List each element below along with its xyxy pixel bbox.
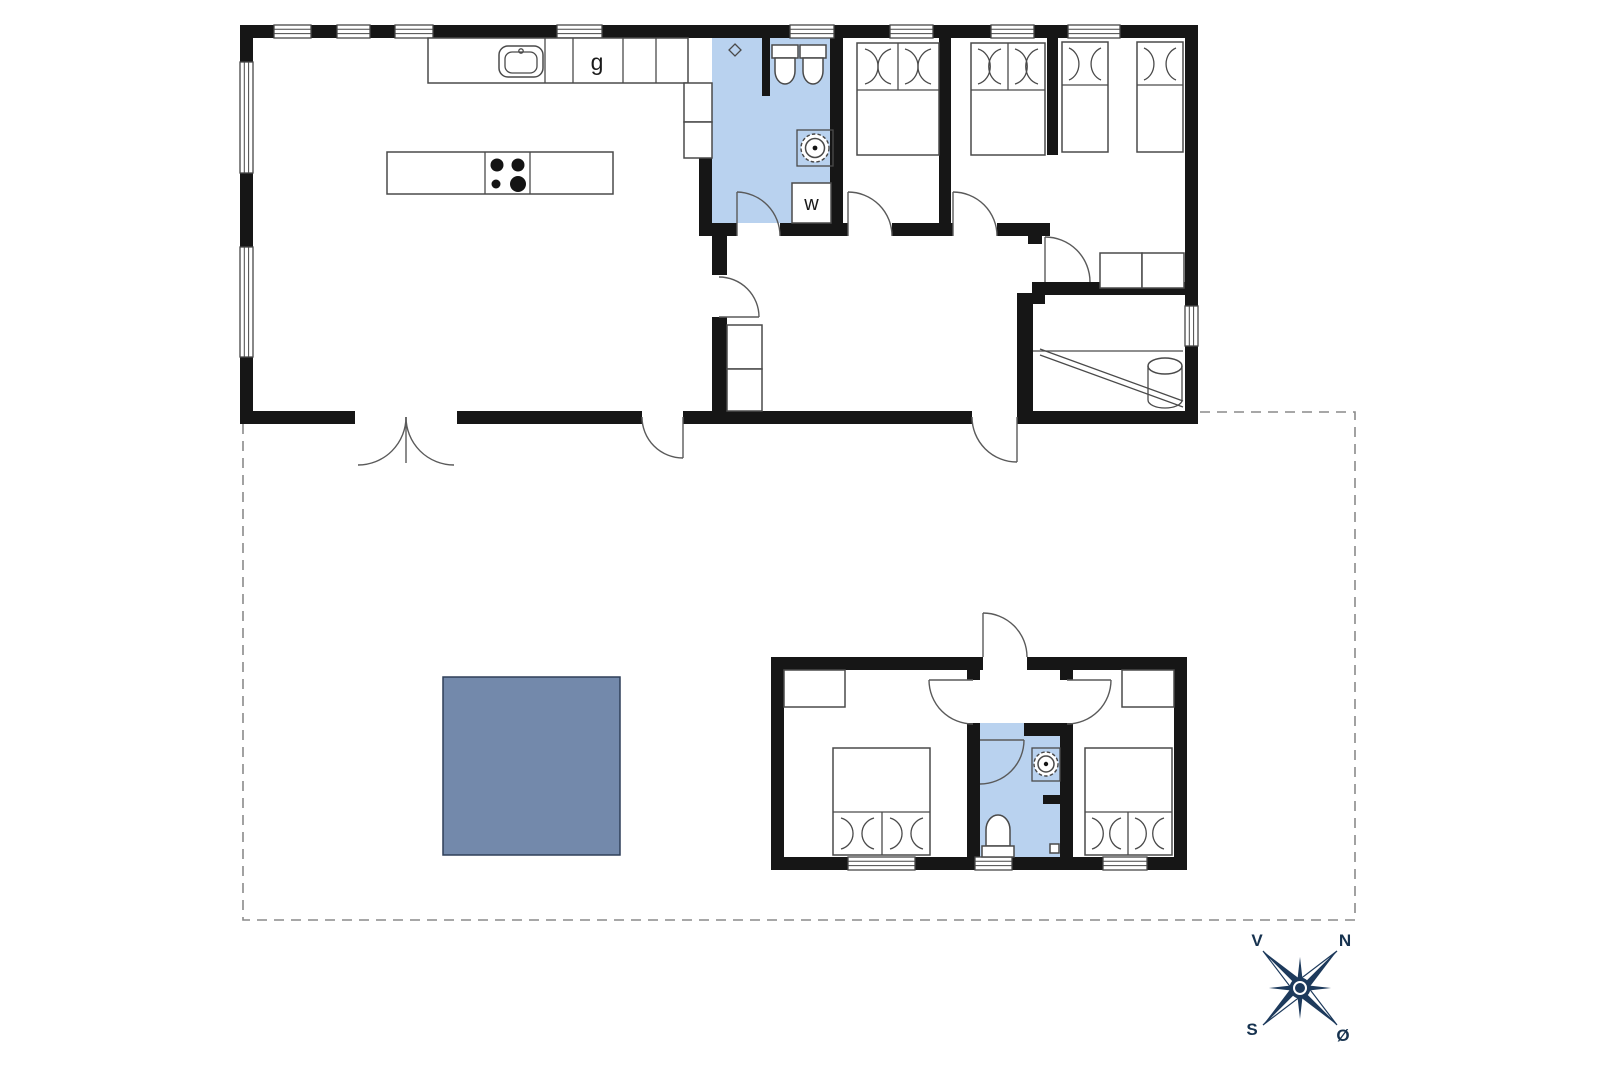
double-bed <box>1085 748 1172 855</box>
bedroom2-door <box>953 192 997 236</box>
annex-left-bedroom <box>784 670 930 855</box>
closet <box>1122 670 1174 707</box>
dresser <box>1142 253 1184 288</box>
window <box>848 857 915 870</box>
window <box>975 857 1012 870</box>
sink-icon <box>499 46 543 77</box>
washing-machine-icon: w <box>792 183 831 223</box>
double-bed <box>833 748 930 855</box>
compass-north-label: N <box>1339 931 1351 950</box>
double-bed <box>857 43 939 155</box>
kitchen: g <box>387 38 712 194</box>
window <box>240 62 253 173</box>
window <box>337 25 370 38</box>
living-to-hall-door <box>719 277 759 317</box>
window <box>890 25 933 38</box>
bedroom3-door <box>1045 237 1090 282</box>
hall <box>727 325 762 411</box>
double-patio-door <box>358 417 454 465</box>
compass-south-label: S <box>1246 1020 1257 1039</box>
sloped-bench <box>1040 349 1183 401</box>
single-bed <box>1137 42 1183 152</box>
stove-label: g <box>591 49 604 75</box>
kitchen-counter <box>428 38 688 83</box>
tall-cabinet <box>684 83 712 122</box>
window <box>991 25 1034 38</box>
window <box>274 25 311 38</box>
window <box>395 25 433 38</box>
closet <box>727 325 762 369</box>
window <box>1103 857 1147 870</box>
bedroom-2 <box>971 43 1045 155</box>
utility-room <box>1033 349 1183 408</box>
annex-right-bedroom-door <box>1067 680 1111 724</box>
floor-plan-drawing: g <box>0 0 1600 1067</box>
annex-right-bedroom <box>1085 670 1174 855</box>
terrace <box>443 677 620 855</box>
toilet-icon <box>800 45 826 84</box>
window <box>240 247 253 357</box>
annex-left-bedroom-door <box>929 680 973 724</box>
floor-plan-page: g <box>0 0 1600 1067</box>
floor-drain-icon <box>1050 844 1059 853</box>
dresser <box>1100 253 1142 288</box>
closet <box>727 369 762 411</box>
kitchen-island <box>387 152 613 194</box>
window <box>557 25 602 38</box>
single-bed <box>1062 42 1108 152</box>
bedroom-1 <box>857 43 939 155</box>
double-bed <box>971 43 1045 155</box>
door-openings <box>355 411 1027 670</box>
window <box>1185 306 1198 346</box>
window <box>1068 25 1120 38</box>
toilet-icon <box>772 45 798 84</box>
window <box>790 25 834 38</box>
tall-cabinet <box>684 122 712 158</box>
compass-east-label: Ø <box>1336 1026 1349 1045</box>
bedroom-3 <box>1062 42 1184 288</box>
annex-entry-door <box>983 613 1027 657</box>
closet <box>784 670 845 707</box>
washing-machine-label: w <box>803 193 819 215</box>
compass-rose <box>1263 951 1337 1025</box>
bedroom1-door <box>848 192 892 236</box>
compass-west-label: V <box>1251 931 1263 950</box>
